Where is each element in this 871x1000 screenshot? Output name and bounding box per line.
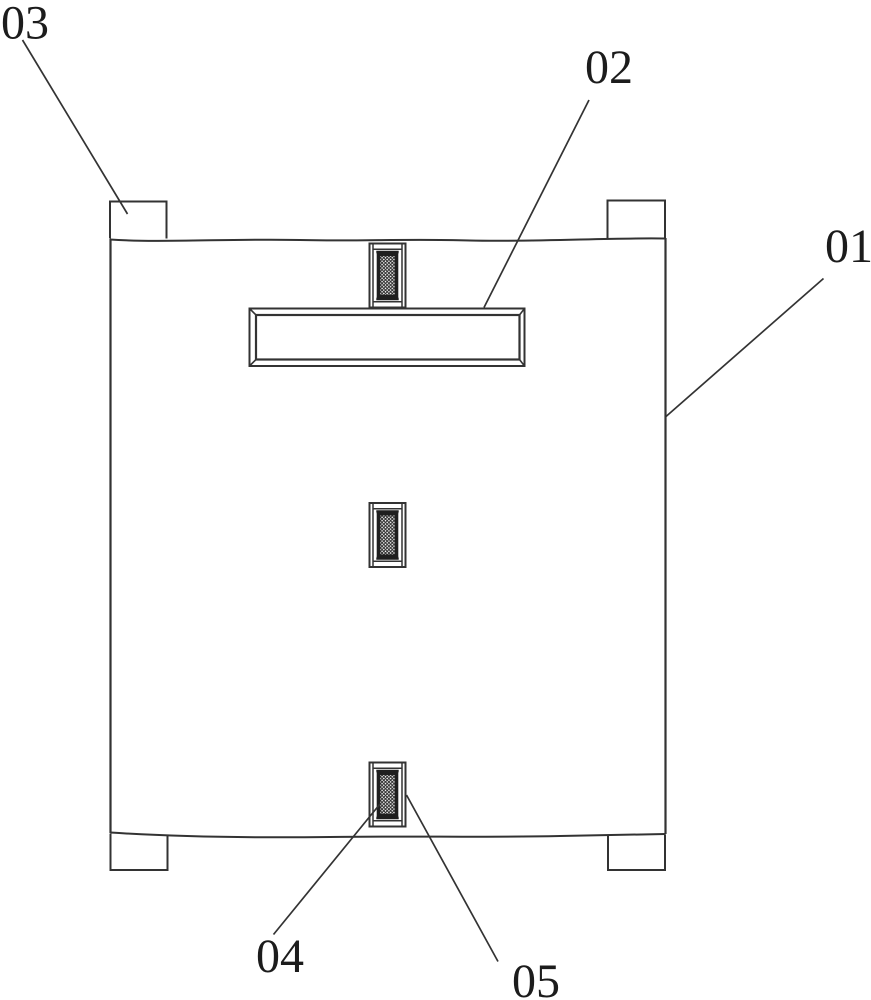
svg-text:02: 02 [585, 41, 633, 94]
svg-text:03: 03 [1, 0, 49, 50]
svg-text:01: 01 [825, 220, 871, 273]
svg-text:05: 05 [512, 955, 560, 1000]
svg-text:04: 04 [256, 930, 304, 983]
